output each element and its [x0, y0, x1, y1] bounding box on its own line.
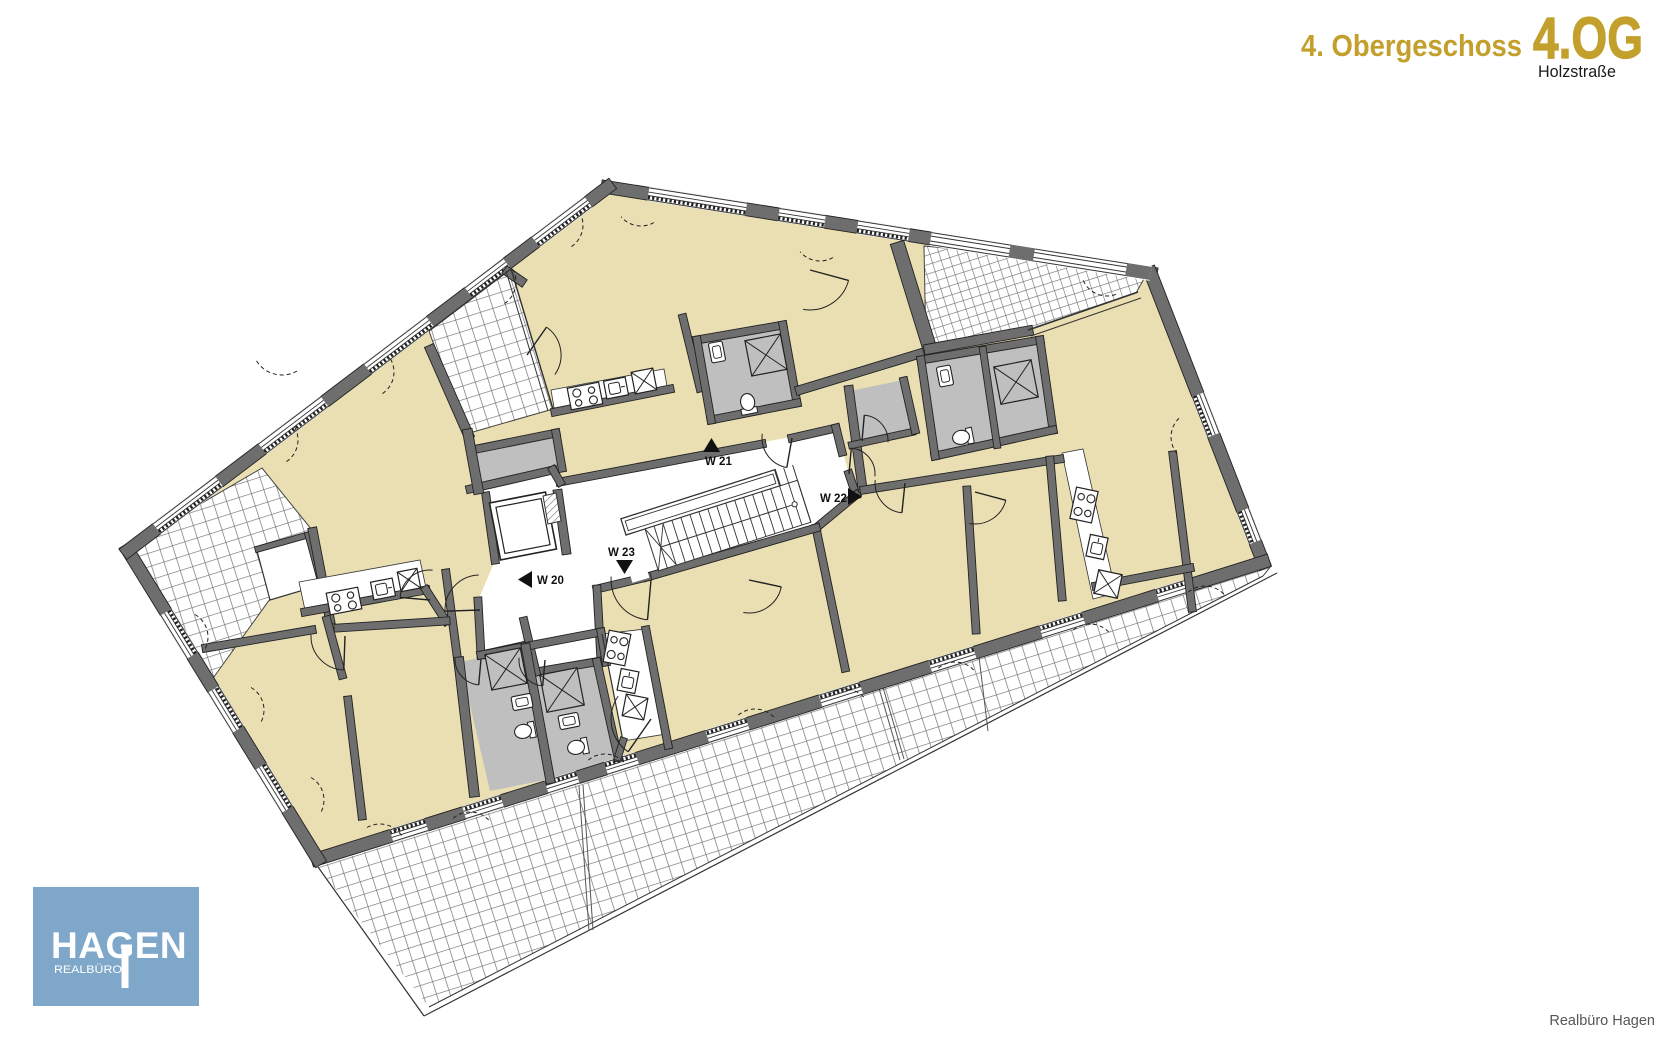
svg-text:W 23: W 23 [608, 547, 635, 559]
svg-text:4.OG: 4.OG [1533, 6, 1643, 71]
svg-text:HAGEN: HAGEN [51, 925, 187, 966]
svg-text:W 22: W 22 [820, 493, 847, 505]
svg-text:W 21: W 21 [705, 456, 732, 468]
svg-text:Holzstraße: Holzstraße [1538, 63, 1616, 81]
svg-text:Realbüro Hagen: Realbüro Hagen [1549, 1013, 1655, 1029]
svg-text:REALBÜRO: REALBÜRO [54, 964, 122, 976]
svg-text:4. Obergeschoss: 4. Obergeschoss [1301, 28, 1522, 63]
svg-text:W 20: W 20 [537, 575, 564, 587]
